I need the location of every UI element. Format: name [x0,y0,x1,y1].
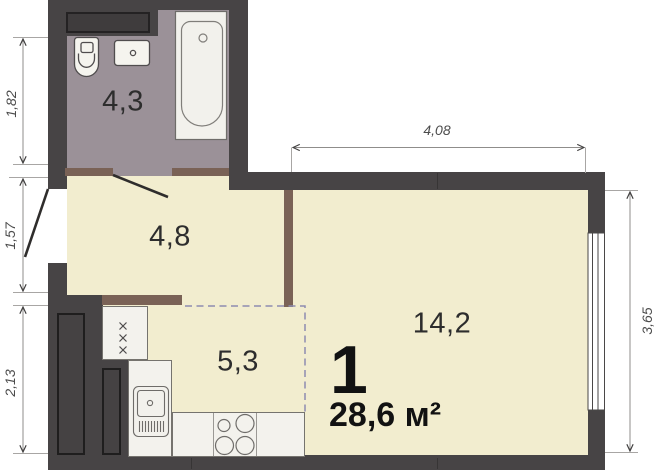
cabinet-cross-marks [120,323,127,354]
stove [214,413,257,456]
kitchen-sink [134,387,169,437]
dimension-right: 3,65 [639,307,654,334]
plan-linework [0,0,654,470]
dimension-left-bottom: 2,13 [2,369,18,396]
living-area-label: 14,2 [413,308,471,341]
window [588,233,605,410]
entrance-door-swing [25,189,48,257]
hallway-area-label: 4,8 [149,221,191,254]
floor-plan: 4,3 4,8 5,3 14,2 1 28,6 м² 1,82 1,57 2,1… [0,0,654,470]
kitchen-area-label: 5,3 [217,346,259,379]
bathroom-area-label: 4,3 [102,86,144,119]
dimension-top: 4,08 [423,122,450,138]
apartment-total-area: 28,6 м² [329,398,441,432]
dimension-left-top: 1,82 [3,90,19,117]
apartment-rooms-count: 1 [330,336,368,404]
bathroom-door-swing [113,175,168,197]
dimension-left-middle: 1,57 [2,222,18,249]
bathtub [176,12,227,140]
toilet [75,38,99,77]
bathroom-sink [115,41,150,66]
